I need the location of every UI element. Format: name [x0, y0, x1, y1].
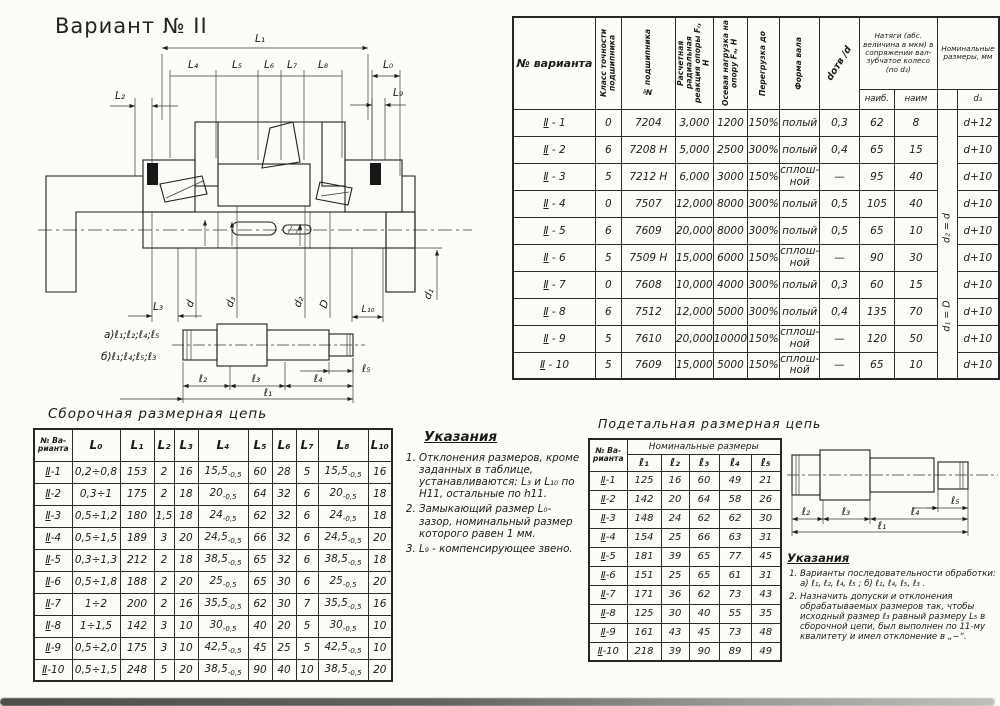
col-group-nominal: Номинальные размеры, мм: [937, 17, 999, 89]
table-cell: 30-0,5: [198, 615, 248, 637]
table-cell: Ⅱ - 5: [513, 217, 596, 244]
dim-label-L0: L₀: [383, 59, 394, 71]
table-cell: 0: [596, 109, 622, 136]
table-row: Ⅱ-10,2÷0,815321615,5-0,56028515,5-0,516: [34, 461, 392, 483]
dim-label-L1: L₁: [255, 33, 265, 45]
table-cell: 212: [120, 549, 154, 571]
table-cell: 39: [661, 547, 689, 566]
table-cell: d+10: [957, 244, 999, 271]
col-header-overload: Перегрузка до: [748, 17, 780, 109]
table-cell: 15: [895, 136, 938, 163]
scan-artifact-band: [0, 698, 995, 706]
table-cell: 18: [174, 483, 198, 505]
table-cell: 2: [154, 571, 174, 593]
table-cell: 38,5-0,5: [318, 549, 368, 571]
dia-label-d2: d₂: [292, 294, 307, 309]
col-header-radial: Расчетная радиальная реакция опоры Fᵣ, Н: [675, 17, 713, 109]
merged-note-top: d₂ = d: [942, 213, 953, 243]
table-cell: d+10: [957, 163, 999, 190]
table-cell: 65: [859, 352, 894, 379]
table-cell: 7: [296, 593, 318, 615]
table-row: Ⅱ-40,5÷1,518932024,5-0,56632624,5-0,520: [34, 527, 392, 549]
table-cell: 200: [120, 593, 154, 615]
instruction-item: L₉ - компенсирующее звено.: [419, 543, 584, 555]
table-row: Ⅱ-615125656131: [589, 566, 781, 585]
table-cell: 6: [296, 571, 318, 593]
table-cell: 150%: [748, 244, 780, 271]
table-cell: 2500: [713, 136, 747, 163]
table-cell: 24-0,5: [198, 505, 248, 527]
table-cell: 150%: [748, 325, 780, 352]
table-cell: 125: [627, 471, 661, 490]
column-header: L₁₀: [368, 429, 392, 461]
table-cell: 300%: [748, 217, 780, 244]
merged-note-cell: d₂ = dd₁ = D: [937, 109, 957, 379]
table-cell: сплош-ной: [780, 352, 820, 379]
assembly-chain-title: Сборочная размерная цепь: [48, 406, 267, 422]
table-cell: Ⅱ-9: [34, 637, 72, 659]
table-cell: Ⅱ-3: [34, 505, 72, 527]
table-cell: 20: [174, 527, 198, 549]
table-cell: 7512: [621, 298, 675, 325]
table-row: Ⅱ-314824626230: [589, 509, 781, 528]
table-cell: 30: [661, 604, 689, 623]
variant-b-label: б)ℓ₁;ℓ₄;ℓ₅;ℓ₃: [101, 351, 156, 363]
table-cell: 25-0,5: [198, 571, 248, 593]
table-cell: полый: [780, 271, 820, 298]
table-cell: 0,3÷1: [72, 483, 120, 505]
table-cell: 42,5-0,5: [318, 637, 368, 659]
table-row: Ⅱ-1021839908949: [589, 642, 781, 661]
table-row: Ⅱ - 267208 Н5,0002500300%полый0,46515d+1…: [513, 136, 999, 163]
table-cell: 60: [859, 271, 894, 298]
table-cell: 20-0,5: [198, 483, 248, 505]
dim-label-l2-lower: ℓ₂: [198, 373, 208, 385]
table-cell: Ⅱ - 2: [513, 136, 596, 163]
bearing-roller-left: [160, 176, 207, 202]
table-cell: сплош-ной: [780, 163, 820, 190]
table-cell: 40: [689, 604, 719, 623]
table-cell: 20: [174, 571, 198, 593]
dia-label-d1: d₁: [422, 287, 437, 301]
table-cell: 150%: [748, 163, 780, 190]
table-cell: 150%: [748, 352, 780, 379]
table-cell: 300%: [748, 136, 780, 163]
table-cell: 6: [596, 298, 622, 325]
table-cell: 40: [248, 615, 272, 637]
col-header-accuracy: Класс точности подшипника: [596, 17, 622, 109]
table-cell: 5: [596, 352, 622, 379]
table-cell: 73: [719, 623, 751, 642]
dia-label-D: D: [318, 298, 332, 310]
table-cell: 43: [661, 623, 689, 642]
table-cell: Ⅱ-10: [589, 642, 627, 661]
column-header: ℓ₃: [689, 454, 719, 471]
table-cell: 7610: [621, 325, 675, 352]
table-cell: сплош-ной: [780, 325, 820, 352]
table-cell: Ⅱ - 3: [513, 163, 596, 190]
table-cell: 15,5-0,5: [198, 461, 248, 483]
table-cell: 36: [661, 585, 689, 604]
table-cell: 90: [859, 244, 894, 271]
table-cell: 20: [368, 571, 392, 593]
table-row: Ⅱ-30,5÷1,21801,51824-0,56232624-0,518: [34, 505, 392, 527]
table-cell: 8: [895, 109, 938, 136]
dim-label-L5: L₅: [232, 59, 242, 71]
table-cell: Ⅱ - 4: [513, 190, 596, 217]
col-header-axial: Осевая нагрузка на опору Fₐ, Н: [713, 17, 747, 109]
table-cell: 1÷1,5: [72, 615, 120, 637]
table-cell: 10: [174, 637, 198, 659]
table-cell: 5,000: [675, 136, 713, 163]
table-cell: 5: [296, 615, 318, 637]
table-cell: 62: [689, 509, 719, 528]
table-cell: 40: [895, 163, 938, 190]
variant-a-label: а)ℓ₁;ℓ₂;ℓ₄;ℓ₅: [104, 329, 159, 341]
table-cell: сплош-ной: [780, 244, 820, 271]
table-cell: Ⅱ-2: [589, 490, 627, 509]
column-header: L₇: [296, 429, 318, 461]
table-cell: 161: [627, 623, 661, 642]
table-cell: 15,000: [675, 352, 713, 379]
table-cell: 175: [120, 483, 154, 505]
table-cell: 125: [627, 604, 661, 623]
table-cell: 181: [627, 547, 661, 566]
table-cell: 0,4: [820, 298, 859, 325]
col-header-shaft-form: Форма вала: [780, 17, 820, 109]
table-cell: 180: [120, 505, 154, 527]
table-cell: 300%: [748, 271, 780, 298]
dim-label-l1: ℓ₁: [877, 520, 887, 532]
table-cell: 2: [154, 549, 174, 571]
table-cell: Ⅱ-1: [34, 461, 72, 483]
table-cell: 7204: [621, 109, 675, 136]
table-cell: 18: [368, 505, 392, 527]
table-cell: 45: [751, 547, 781, 566]
table-cell: 62: [248, 505, 272, 527]
table-cell: 18: [368, 549, 392, 571]
table-cell: 35,5-0,5: [198, 593, 248, 615]
dim-label-l4-lower: ℓ₄: [313, 373, 323, 385]
table-cell: 32: [272, 549, 296, 571]
table-cell: d+12: [957, 109, 999, 136]
table-row: Ⅱ - 95761020,00010000150%сплош-ной—12050…: [513, 325, 999, 352]
dim-label-l5: ℓ₅: [950, 495, 960, 507]
table-cell: 7212 Н: [621, 163, 675, 190]
table-cell: 142: [627, 490, 661, 509]
bearing-parameters-table: № варианта Класс точности подшипника № п…: [512, 16, 1000, 380]
table-cell: 45: [248, 637, 272, 659]
table-row: Ⅱ - 657509 Н15,0006000150%сплош-ной—9030…: [513, 244, 999, 271]
column-header: L₁: [120, 429, 154, 461]
table-cell: 248: [120, 659, 154, 681]
table-cell: Ⅱ - 6: [513, 244, 596, 271]
detail-chain-table: № Ва- рианта Номинальные размеры ℓ₁ℓ₂ℓ₃ℓ…: [588, 438, 782, 662]
table-row: Ⅱ-415425666331: [589, 528, 781, 547]
table-cell: Ⅱ-8: [34, 615, 72, 637]
table-cell: полый: [780, 136, 820, 163]
table-cell: 58: [719, 490, 751, 509]
table-cell: 3000: [713, 163, 747, 190]
column-header: L₂: [154, 429, 174, 461]
table-cell: 30: [751, 509, 781, 528]
table-cell: 32: [272, 505, 296, 527]
table-cell: Ⅱ-9: [589, 623, 627, 642]
table-cell: 5000: [713, 298, 747, 325]
dim-label-L10: L₁₀: [362, 304, 375, 315]
table-cell: 39: [661, 642, 689, 661]
dim-label-l4: ℓ₄: [910, 506, 920, 518]
table-cell: 20: [368, 659, 392, 681]
col-header-d3: d₃: [957, 89, 999, 109]
table-cell: 142: [120, 615, 154, 637]
table-cell: d+10: [957, 325, 999, 352]
table-cell: 77: [719, 547, 751, 566]
table-cell: 5000: [713, 352, 747, 379]
dim-label-L7: L₇: [287, 59, 298, 71]
table-cell: 0,4: [820, 136, 859, 163]
col-header-variant: № варианта: [513, 17, 596, 109]
table-cell: 8000: [713, 190, 747, 217]
column-header: ℓ₅: [751, 454, 781, 471]
table-cell: 2: [154, 461, 174, 483]
table-cell: 1,5: [154, 505, 174, 527]
table-cell: 62: [248, 593, 272, 615]
table-cell: 90: [689, 642, 719, 661]
table-cell: полый: [780, 109, 820, 136]
table-cell: 0,3÷1,3: [72, 549, 120, 571]
table-row: Ⅱ - 105760915,0005000150%сплош-ной—6510d…: [513, 352, 999, 379]
table-cell: 300%: [748, 298, 780, 325]
table-cell: Ⅱ-2: [34, 483, 72, 505]
table-cell: 7609: [621, 352, 675, 379]
table-cell: 70: [895, 298, 938, 325]
table-cell: 25: [272, 637, 296, 659]
table-cell: Ⅱ-5: [589, 547, 627, 566]
table-cell: полый: [780, 298, 820, 325]
dim-label-l3: ℓ₃: [841, 506, 851, 518]
table-row: Ⅱ-100,5÷1,524852038,5-0,590401038,5-0,52…: [34, 659, 392, 681]
table-cell: 30-0,5: [318, 615, 368, 637]
table-row: Ⅱ-812530405535: [589, 604, 781, 623]
table-cell: 45: [689, 623, 719, 642]
table-cell: 62: [689, 585, 719, 604]
table-cell: 12,000: [675, 190, 713, 217]
table-cell: —: [820, 325, 859, 352]
dim-label-L6: L₆: [264, 59, 274, 71]
table-cell: 7208 Н: [621, 136, 675, 163]
table-cell: 35: [751, 604, 781, 623]
table-cell: 218: [627, 642, 661, 661]
table-cell: 65: [859, 136, 894, 163]
table-cell: 175: [120, 637, 154, 659]
table-cell: 30: [272, 593, 296, 615]
table-cell: d+10: [957, 136, 999, 163]
table-cell: 28: [272, 461, 296, 483]
table-cell: 20: [174, 659, 198, 681]
table-cell: 20: [368, 527, 392, 549]
table-row: Ⅱ-916143457348: [589, 623, 781, 642]
table-cell: 95: [859, 163, 894, 190]
dim-label-l3-lower: ℓ₃: [251, 373, 261, 385]
table-cell: 5: [596, 244, 622, 271]
table-cell: 10: [895, 217, 938, 244]
dim-label-L4: L₄: [188, 59, 199, 71]
detail-col-header-variant: № Ва- рианта: [589, 439, 627, 471]
table-cell: 64: [248, 483, 272, 505]
table-cell: 38,5-0,5: [318, 659, 368, 681]
table-cell: 135: [859, 298, 894, 325]
dim-label-L3: L₃: [153, 301, 163, 313]
table-row: Ⅱ-214220645826: [589, 490, 781, 509]
dim-label-l2: ℓ₂: [801, 506, 811, 518]
table-cell: 61: [719, 566, 751, 585]
assembly-section-drawing: L₁ L₄ L₅ L₆ L₇ L₈ L₀ L₂ L₉ L₃: [0, 0, 500, 410]
table-cell: 0,5÷1,2: [72, 505, 120, 527]
table-cell: 0,5÷1,8: [72, 571, 120, 593]
table-cell: Ⅱ-1: [589, 471, 627, 490]
dia-label-d: d: [184, 298, 198, 309]
table-cell: 65: [248, 549, 272, 571]
bearing-roller-right: [316, 182, 352, 205]
column-header: ℓ₂: [661, 454, 689, 471]
table-cell: 0: [596, 190, 622, 217]
table-cell: Ⅱ - 1: [513, 109, 596, 136]
table-cell: 24: [661, 509, 689, 528]
table-cell: d+10: [957, 217, 999, 244]
table-cell: 35,5-0,5: [318, 593, 368, 615]
table-cell: полый: [780, 190, 820, 217]
seal-right: [370, 163, 381, 185]
table-cell: 21: [751, 471, 781, 490]
table-row: Ⅱ-112516604921: [589, 471, 781, 490]
instruction-item: Варианты последовательности обработки: а…: [800, 569, 999, 589]
col-header-nominal-spacer: [937, 89, 957, 109]
keyway-slot-small: [283, 225, 311, 234]
table-cell: 40: [272, 659, 296, 681]
detail-shaft-drawing: ℓ₅ ℓ₂ ℓ₃ ℓ₄ ℓ₁: [785, 440, 1000, 540]
col-header-dotv: dотв /d: [820, 17, 859, 109]
table-cell: 7608: [621, 271, 675, 298]
table-cell: 16: [661, 471, 689, 490]
table-cell: 38,5-0,5: [198, 549, 248, 571]
col-header-bearing-no: № подшипника: [621, 17, 675, 109]
table-cell: 0,5÷2,0: [72, 637, 120, 659]
table-cell: 7509 Н: [621, 244, 675, 271]
table-cell: 6,000: [675, 163, 713, 190]
table-cell: 32: [272, 483, 296, 505]
table-cell: 8000: [713, 217, 747, 244]
table-cell: 10: [368, 637, 392, 659]
table-cell: Ⅱ-4: [34, 527, 72, 549]
table-cell: 90: [248, 659, 272, 681]
table-cell: Ⅱ-5: [34, 549, 72, 571]
table-cell: 5: [154, 659, 174, 681]
table-cell: 188: [120, 571, 154, 593]
dim-label-L2: L₂: [115, 90, 126, 102]
table-cell: 6000: [713, 244, 747, 271]
table-cell: Ⅱ-10: [34, 659, 72, 681]
table-row: Ⅱ-81÷1,514231030-0,54020530-0,510: [34, 615, 392, 637]
table-cell: 20,000: [675, 325, 713, 352]
table-row: Ⅱ-50,3÷1,321221838,5-0,56532638,5-0,518: [34, 549, 392, 571]
table-cell: 24-0,5: [318, 505, 368, 527]
table-cell: 31: [751, 528, 781, 547]
table-cell: 24,5-0,5: [318, 527, 368, 549]
column-header: L₅: [248, 429, 272, 461]
table-cell: 20,000: [675, 217, 713, 244]
table-cell: 20: [272, 615, 296, 637]
table-cell: 6: [296, 549, 318, 571]
table-cell: 171: [627, 585, 661, 604]
table-cell: 6: [296, 527, 318, 549]
col-group-natyag: Натяги (абс. величина в мкм) в сопряжени…: [859, 17, 937, 89]
gear-hub: [218, 164, 310, 206]
table-cell: Ⅱ - 9: [513, 325, 596, 352]
dim-label-L9: L₉: [393, 87, 404, 99]
table-cell: d+10: [957, 298, 999, 325]
table-cell: 3: [154, 527, 174, 549]
table-cell: 5: [596, 325, 622, 352]
table-cell: 105: [859, 190, 894, 217]
table-row: Ⅱ-20,3÷117521820-0,56432620-0,518: [34, 483, 392, 505]
table-row: Ⅱ - 86751212,0005000300%полый0,413570d+1…: [513, 298, 999, 325]
table-cell: 5: [596, 163, 622, 190]
table-cell: 65: [248, 571, 272, 593]
col-header-natyag-max: наиб.: [859, 89, 894, 109]
table-cell: 89: [719, 642, 751, 661]
table-cell: 7507: [621, 190, 675, 217]
table-cell: 0,3: [820, 271, 859, 298]
table-cell: 65: [689, 566, 719, 585]
dia-label-d3: d₃: [224, 295, 239, 309]
table-cell: 48: [751, 623, 781, 642]
table-row: Ⅱ-717136627343: [589, 585, 781, 604]
table-cell: 10000: [713, 325, 747, 352]
table-cell: 6: [596, 136, 622, 163]
table-cell: 25-0,5: [318, 571, 368, 593]
table-cell: 6: [296, 483, 318, 505]
table-cell: 25: [661, 528, 689, 547]
column-header: L₈: [318, 429, 368, 461]
table-cell: 12,000: [675, 298, 713, 325]
table-cell: 10: [368, 615, 392, 637]
table-cell: 16: [368, 461, 392, 483]
detail-instructions-list: Варианты последовательности обработки: а…: [787, 569, 999, 643]
table-cell: 66: [689, 528, 719, 547]
column-header: ℓ₁: [627, 454, 661, 471]
table-row: Ⅱ-60,5÷1,818822025-0,56530625-0,520: [34, 571, 392, 593]
detail-instructions: Указания Варианты последовательности обр…: [787, 552, 999, 646]
table-cell: 49: [751, 642, 781, 661]
table-cell: 18: [368, 483, 392, 505]
table-row: Ⅱ - 40750712,0008000300%полый0,510540d+1…: [513, 190, 999, 217]
table-cell: —: [820, 163, 859, 190]
table-cell: 49: [719, 471, 751, 490]
dim-label-L8: L₈: [318, 59, 329, 71]
table-cell: 2: [154, 483, 174, 505]
table-cell: 38,5-0,5: [198, 659, 248, 681]
table-cell: —: [820, 352, 859, 379]
detail-instructions-title: Указания: [787, 552, 999, 566]
dim-label-l5-lower: ℓ₅: [361, 363, 371, 375]
detail-chain-title: Подетальная размерная цепь: [598, 416, 821, 431]
table-cell: d+10: [957, 190, 999, 217]
table-cell: Ⅱ-8: [589, 604, 627, 623]
table-cell: 25: [661, 566, 689, 585]
table-cell: 55: [719, 604, 751, 623]
column-header: L₃: [174, 429, 198, 461]
